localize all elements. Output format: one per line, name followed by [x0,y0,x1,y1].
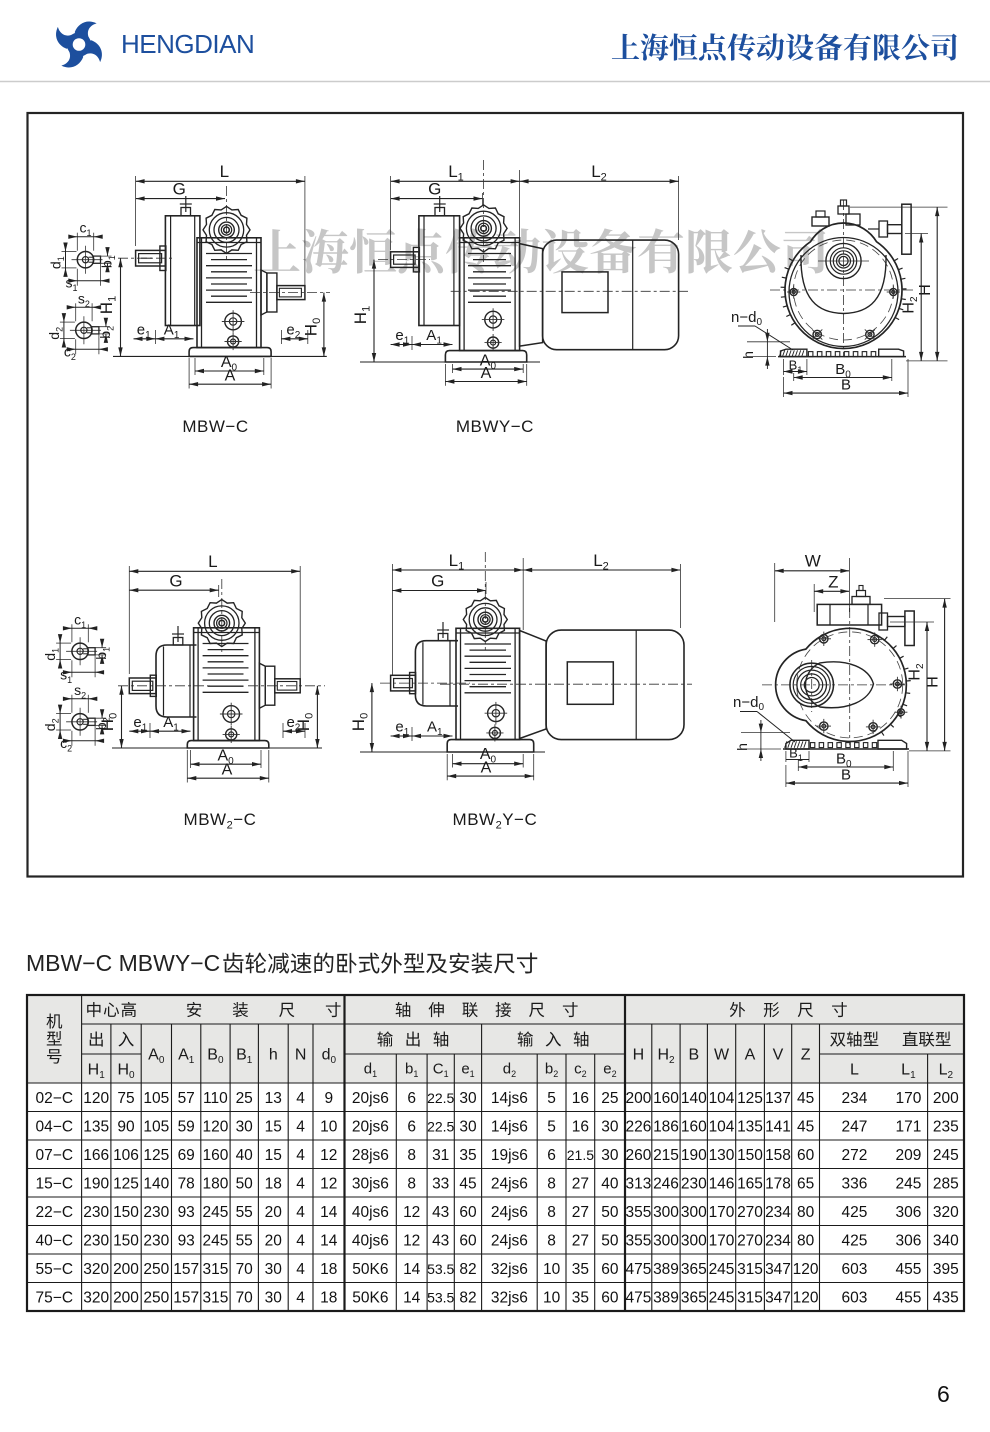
svg-text:A: A [481,759,492,776]
svg-text:50: 50 [601,1233,619,1250]
svg-text:4: 4 [296,1176,305,1193]
svg-text:250: 250 [143,1261,169,1278]
svg-text:230: 230 [143,1204,169,1221]
svg-text:315: 315 [202,1261,228,1278]
svg-text:340: 340 [933,1233,959,1250]
svg-text:W: W [714,1047,730,1064]
svg-text:40: 40 [601,1176,619,1193]
svg-text:140: 140 [681,1090,707,1107]
svg-text:35: 35 [459,1147,476,1164]
svg-text:234: 234 [765,1233,791,1250]
svg-text:455: 455 [895,1261,921,1278]
svg-text:18: 18 [320,1290,337,1307]
svg-text:HENGDIAN: HENGDIAN [121,29,254,59]
svg-text:104: 104 [709,1090,735,1107]
svg-text:395: 395 [933,1261,959,1278]
svg-text:12: 12 [403,1204,420,1221]
svg-text:105: 105 [143,1090,169,1107]
svg-text:166: 166 [83,1147,109,1164]
svg-text:347: 347 [765,1261,791,1278]
svg-text:158: 158 [765,1147,791,1164]
svg-text:L: L [208,552,217,571]
svg-text:4: 4 [296,1233,305,1250]
svg-text:245: 245 [202,1233,228,1250]
svg-text:313: 313 [625,1176,651,1193]
svg-text:157: 157 [173,1290,199,1307]
svg-text:20: 20 [265,1233,283,1250]
svg-text:110: 110 [203,1090,228,1107]
svg-text:G: G [431,572,444,591]
svg-text:V: V [773,1047,784,1064]
svg-text:125: 125 [143,1147,169,1164]
svg-text:5: 5 [547,1119,556,1136]
svg-text:14: 14 [320,1233,338,1250]
svg-text:160: 160 [202,1147,228,1164]
svg-text:125: 125 [737,1090,763,1107]
svg-text:45: 45 [459,1176,476,1193]
svg-text:245: 245 [933,1147,959,1164]
svg-text:9: 9 [324,1090,333,1107]
svg-text:G: G [428,180,441,199]
svg-text:15: 15 [265,1147,282,1164]
svg-text:h: h [740,351,756,359]
svg-text:245: 245 [709,1261,735,1278]
svg-text:215: 215 [653,1147,679,1164]
svg-text:389: 389 [653,1290,679,1307]
svg-text:80: 80 [797,1233,815,1250]
svg-text:10: 10 [543,1261,561,1278]
svg-text:27: 27 [572,1233,589,1250]
svg-text:365: 365 [681,1261,707,1278]
svg-text:14: 14 [403,1261,421,1278]
svg-text:25: 25 [601,1090,618,1107]
svg-text:246: 246 [653,1176,679,1193]
svg-text:12: 12 [320,1176,337,1193]
svg-text:4: 4 [296,1090,305,1107]
svg-text:270: 270 [737,1204,763,1221]
svg-text:200: 200 [113,1290,139,1307]
svg-text:234: 234 [841,1090,867,1107]
svg-text:200: 200 [625,1090,651,1107]
svg-text:82: 82 [459,1290,476,1307]
svg-text:300: 300 [681,1204,707,1221]
svg-text:120: 120 [793,1261,819,1278]
svg-text:105: 105 [143,1119,169,1136]
svg-text:24js6: 24js6 [491,1233,528,1250]
svg-text:93: 93 [178,1233,195,1250]
svg-text:245: 245 [895,1176,921,1193]
svg-text:10: 10 [320,1119,338,1136]
svg-text:30: 30 [265,1261,283,1278]
svg-text:75: 75 [117,1090,134,1107]
svg-text:G: G [173,180,186,199]
svg-text:43: 43 [432,1204,449,1221]
svg-text:150: 150 [113,1204,139,1221]
svg-text:69: 69 [178,1147,195,1164]
svg-text:45: 45 [797,1119,814,1136]
svg-text:90: 90 [117,1119,135,1136]
svg-text:22.5: 22.5 [427,1090,454,1106]
svg-text:07−C: 07−C [36,1147,74,1164]
svg-text:320: 320 [83,1261,109,1278]
svg-text:40js6: 40js6 [352,1233,389,1250]
svg-text:4: 4 [296,1119,305,1136]
svg-text:13: 13 [265,1090,282,1107]
svg-text:20js6: 20js6 [352,1119,389,1136]
svg-text:425: 425 [841,1204,867,1221]
svg-text:27: 27 [572,1176,589,1193]
svg-text:160: 160 [653,1090,679,1107]
svg-text:24js6: 24js6 [491,1204,528,1221]
svg-text:G: G [169,572,182,591]
svg-text:425: 425 [841,1233,867,1250]
svg-text:135: 135 [737,1119,763,1136]
svg-text:137: 137 [765,1090,791,1107]
svg-text:125: 125 [113,1176,139,1193]
svg-text:14: 14 [403,1290,421,1307]
svg-text:32js6: 32js6 [491,1261,528,1278]
svg-text:135: 135 [83,1119,109,1136]
svg-text:603: 603 [841,1261,867,1278]
svg-text:19js6: 19js6 [491,1147,528,1164]
svg-text:50: 50 [236,1176,254,1193]
svg-text:200: 200 [113,1261,139,1278]
svg-text:55: 55 [236,1204,253,1221]
svg-text:260: 260 [625,1147,651,1164]
svg-text:27: 27 [572,1204,589,1221]
svg-text:245: 245 [202,1204,228,1221]
svg-text:5: 5 [547,1090,556,1107]
svg-text:170: 170 [709,1204,735,1221]
svg-text:171: 171 [895,1119,921,1136]
svg-text:22.5: 22.5 [427,1119,454,1135]
svg-text:B: B [841,377,851,394]
svg-text:150: 150 [113,1233,139,1250]
svg-text:12: 12 [320,1147,337,1164]
svg-text:306: 306 [895,1204,921,1221]
svg-text:30: 30 [459,1090,477,1107]
svg-text:141: 141 [765,1119,791,1136]
svg-text:336: 336 [841,1176,867,1193]
svg-text:355: 355 [625,1204,651,1221]
svg-text:50K6: 50K6 [352,1290,388,1307]
svg-text:455: 455 [895,1290,921,1307]
svg-text:B: B [841,767,851,784]
svg-text:60: 60 [797,1147,815,1164]
svg-text:02−C: 02−C [36,1090,74,1107]
svg-text:4: 4 [296,1290,305,1307]
svg-text:14js6: 14js6 [491,1090,528,1107]
svg-text:315: 315 [737,1290,763,1307]
svg-text:75−C: 75−C [36,1290,74,1307]
svg-text:15−C: 15−C [36,1176,74,1193]
svg-text:150: 150 [737,1147,763,1164]
svg-text:33: 33 [432,1176,449,1193]
svg-text:250: 250 [143,1290,169,1307]
svg-text:Z: Z [801,1047,811,1064]
svg-text:230: 230 [681,1176,707,1193]
svg-text:165: 165 [737,1176,763,1193]
svg-text:178: 178 [765,1176,791,1193]
svg-text:A: A [481,365,492,382]
svg-text:8: 8 [407,1147,416,1164]
svg-text:8: 8 [407,1176,416,1193]
svg-text:6: 6 [547,1147,556,1164]
svg-text:157: 157 [173,1261,199,1278]
svg-text:234: 234 [765,1204,791,1221]
svg-text:120: 120 [83,1090,109,1107]
svg-text:6: 6 [937,1381,950,1407]
svg-text:14js6: 14js6 [491,1119,528,1136]
svg-text:30: 30 [601,1147,619,1164]
svg-text:389: 389 [653,1261,679,1278]
svg-text:230: 230 [83,1233,109,1250]
svg-text:245: 245 [709,1290,735,1307]
svg-text:475: 475 [625,1290,651,1307]
svg-text:30: 30 [601,1119,619,1136]
svg-text:347: 347 [765,1290,791,1307]
svg-text:16: 16 [572,1119,589,1136]
svg-text:L: L [220,162,229,181]
svg-text:8: 8 [547,1204,556,1221]
svg-text:MBW2Y−C: MBW2Y−C [453,810,538,832]
svg-text:65: 65 [797,1176,814,1193]
svg-text:21.5: 21.5 [567,1147,594,1163]
svg-text:50K6: 50K6 [352,1261,388,1278]
svg-text:55−C: 55−C [36,1261,74,1278]
svg-text:106: 106 [113,1147,139,1164]
svg-text:60: 60 [459,1233,477,1250]
svg-text:15: 15 [265,1119,282,1136]
svg-text:53.5: 53.5 [427,1261,454,1277]
svg-text:50: 50 [601,1204,619,1221]
svg-text:247: 247 [841,1119,867,1136]
svg-text:32js6: 32js6 [491,1290,528,1307]
svg-text:30: 30 [265,1290,283,1307]
svg-text:4: 4 [296,1204,305,1221]
svg-text:35: 35 [572,1261,589,1278]
svg-text:320: 320 [933,1204,959,1221]
svg-text:L: L [850,1062,859,1079]
svg-text:B: B [688,1047,699,1064]
svg-text:53.5: 53.5 [427,1290,454,1306]
svg-text:365: 365 [681,1290,707,1307]
svg-text:22−C: 22−C [36,1204,74,1221]
svg-text:170: 170 [709,1233,735,1250]
svg-text:h: h [269,1047,278,1064]
svg-text:78: 78 [178,1176,195,1193]
svg-text:59: 59 [178,1119,195,1136]
svg-text:40: 40 [236,1147,254,1164]
svg-text:80: 80 [797,1204,815,1221]
svg-text:190: 190 [83,1176,109,1193]
svg-text:230: 230 [143,1233,169,1250]
svg-text:h: h [734,743,750,751]
svg-text:315: 315 [737,1261,763,1278]
svg-text:45: 45 [797,1090,814,1107]
svg-text:226: 226 [625,1119,651,1136]
svg-text:190: 190 [681,1147,707,1164]
svg-text:MBW2−C: MBW2−C [184,810,257,832]
svg-text:320: 320 [83,1290,109,1307]
svg-text:120: 120 [793,1290,819,1307]
svg-text:40−C: 40−C [36,1233,74,1250]
svg-text:603: 603 [841,1290,867,1307]
svg-text:H: H [917,284,934,296]
svg-text:186: 186 [653,1119,679,1136]
svg-text:28js6: 28js6 [352,1147,389,1164]
svg-text:10: 10 [543,1290,561,1307]
svg-text:300: 300 [653,1204,679,1221]
svg-text:A: A [222,762,233,779]
svg-text:24js6: 24js6 [491,1176,528,1193]
svg-text:285: 285 [933,1176,959,1193]
svg-text:315: 315 [202,1290,228,1307]
svg-text:A: A [225,368,236,385]
svg-text:8: 8 [547,1176,556,1193]
svg-text:57: 57 [178,1090,195,1107]
svg-text:306: 306 [895,1233,921,1250]
svg-text:55: 55 [236,1233,253,1250]
svg-text:31: 31 [432,1147,449,1164]
svg-text:435: 435 [933,1290,959,1307]
svg-text:30: 30 [236,1119,254,1136]
svg-text:14: 14 [320,1204,338,1221]
svg-text:20: 20 [265,1204,283,1221]
svg-text:12: 12 [403,1233,420,1250]
svg-text:475: 475 [625,1261,651,1278]
svg-text:A: A [745,1047,756,1064]
svg-text:MBWY−C: MBWY−C [456,417,534,436]
svg-text:MBW−C MBWY−C: MBW−C MBWY−C [26,950,220,976]
svg-text:W: W [805,552,821,571]
svg-text:200: 200 [933,1090,959,1107]
svg-text:N: N [295,1047,307,1064]
svg-text:6: 6 [407,1119,416,1136]
svg-text:209: 209 [895,1147,921,1164]
svg-text:20js6: 20js6 [352,1090,389,1107]
svg-text:6: 6 [407,1090,416,1107]
svg-text:04−C: 04−C [36,1119,74,1136]
svg-text:43: 43 [432,1233,449,1250]
svg-text:230: 230 [83,1204,109,1221]
svg-text:30: 30 [459,1119,477,1136]
svg-text:300: 300 [653,1233,679,1250]
svg-text:120: 120 [202,1119,228,1136]
svg-text:170: 170 [895,1090,921,1107]
svg-text:4: 4 [296,1147,305,1164]
svg-text:104: 104 [709,1119,735,1136]
svg-text:60: 60 [459,1204,477,1221]
svg-text:4: 4 [296,1261,305,1278]
svg-text:160: 160 [681,1119,707,1136]
svg-text:70: 70 [236,1290,254,1307]
svg-text:16: 16 [572,1090,589,1107]
svg-text:35: 35 [572,1290,589,1307]
svg-text:70: 70 [236,1261,254,1278]
svg-text:130: 130 [709,1147,735,1164]
svg-text:235: 235 [933,1119,959,1136]
svg-text:18: 18 [265,1176,282,1193]
svg-text:30js6: 30js6 [352,1176,389,1193]
svg-text:60: 60 [601,1290,619,1307]
svg-text:MBW−C: MBW−C [182,417,248,436]
svg-text:18: 18 [320,1261,337,1278]
svg-text:8: 8 [547,1233,556,1250]
svg-text:40js6: 40js6 [352,1204,389,1221]
svg-text:Z: Z [828,573,838,592]
svg-text:140: 140 [143,1176,169,1193]
svg-text:H: H [633,1047,645,1064]
svg-text:60: 60 [601,1261,619,1278]
svg-text:300: 300 [681,1233,707,1250]
svg-text:146: 146 [709,1176,735,1193]
svg-text:25: 25 [236,1090,253,1107]
svg-text:355: 355 [625,1233,651,1250]
svg-text:270: 270 [737,1233,763,1250]
svg-text:272: 272 [841,1147,867,1164]
svg-text:93: 93 [178,1204,195,1221]
svg-text:82: 82 [459,1261,476,1278]
svg-text:180: 180 [202,1176,228,1193]
